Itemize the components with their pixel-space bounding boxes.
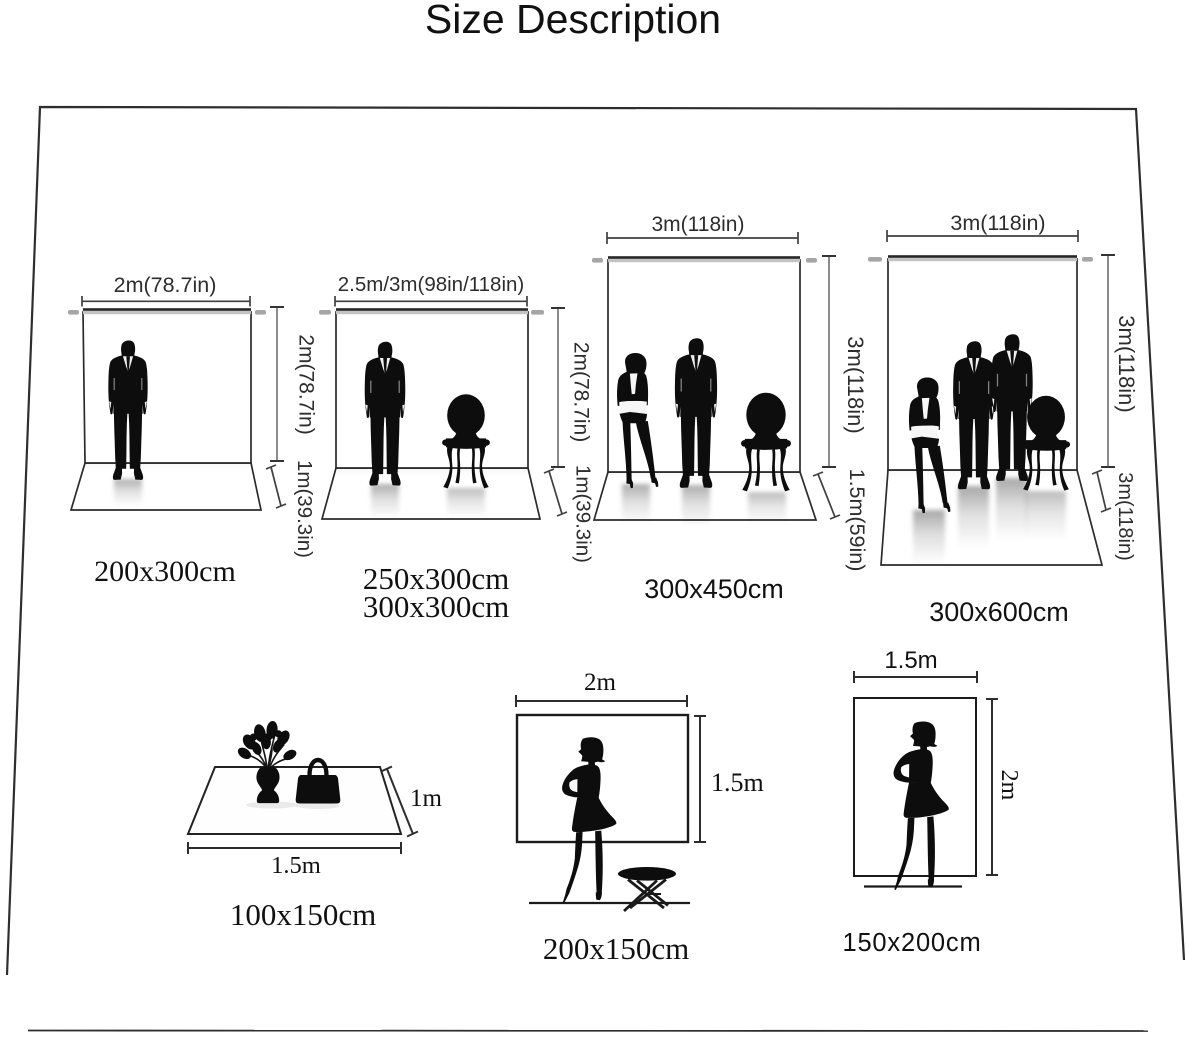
svg-text:150x200cm: 150x200cm	[842, 929, 981, 957]
svg-text:3m(118in): 3m(118in)	[1114, 315, 1139, 412]
svg-text:100x150cm: 100x150cm	[230, 897, 376, 932]
svg-text:3m(118in): 3m(118in)	[652, 213, 745, 236]
svg-text:3m(118in): 3m(118in)	[950, 211, 1045, 235]
svg-text:1.5m: 1.5m	[884, 647, 937, 674]
svg-text:1m(39.3in): 1m(39.3in)	[572, 465, 595, 563]
svg-text:2m: 2m	[996, 770, 1022, 801]
svg-text:1m: 1m	[410, 785, 443, 812]
svg-text:1.5m: 1.5m	[711, 768, 764, 797]
svg-text:Size Description: Size Description	[425, 0, 721, 42]
svg-text:3m(118in): 3m(118in)	[1114, 472, 1136, 561]
svg-text:2m(78.7in): 2m(78.7in)	[114, 273, 217, 297]
svg-text:3m(118in): 3m(118in)	[843, 336, 868, 433]
svg-text:300x300cm: 300x300cm	[363, 589, 509, 624]
svg-text:2m(78.7in): 2m(78.7in)	[295, 334, 318, 434]
svg-text:200x300cm: 200x300cm	[94, 555, 236, 588]
svg-text:200x150cm: 200x150cm	[543, 931, 689, 966]
svg-text:2m(78.7in): 2m(78.7in)	[570, 342, 593, 442]
svg-text:2m: 2m	[584, 669, 617, 696]
svg-text:1.5m: 1.5m	[271, 852, 321, 879]
svg-text:300x450cm: 300x450cm	[644, 574, 784, 604]
svg-text:2.5m/3m(98in/118in): 2.5m/3m(98in/118in)	[338, 273, 525, 296]
svg-text:1m(39.3in): 1m(39.3in)	[293, 460, 316, 558]
svg-text:1.5m(59in): 1.5m(59in)	[845, 469, 869, 572]
svg-text:300x600cm: 300x600cm	[929, 597, 1069, 627]
